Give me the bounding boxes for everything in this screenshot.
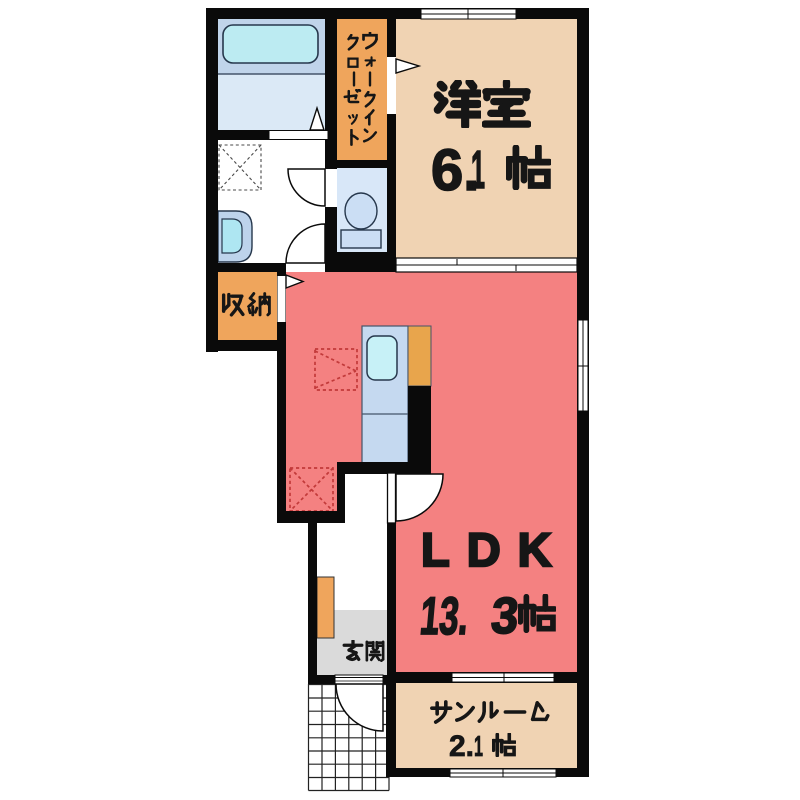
svg-text:13.: 13. bbox=[418, 587, 471, 646]
svg-text:1: 1 bbox=[471, 140, 485, 200]
svg-text:2.: 2. bbox=[449, 730, 474, 763]
svg-text:3: 3 bbox=[489, 587, 521, 644]
svg-text:1: 1 bbox=[474, 731, 483, 763]
svg-text:LDK: LDK bbox=[421, 523, 569, 576]
